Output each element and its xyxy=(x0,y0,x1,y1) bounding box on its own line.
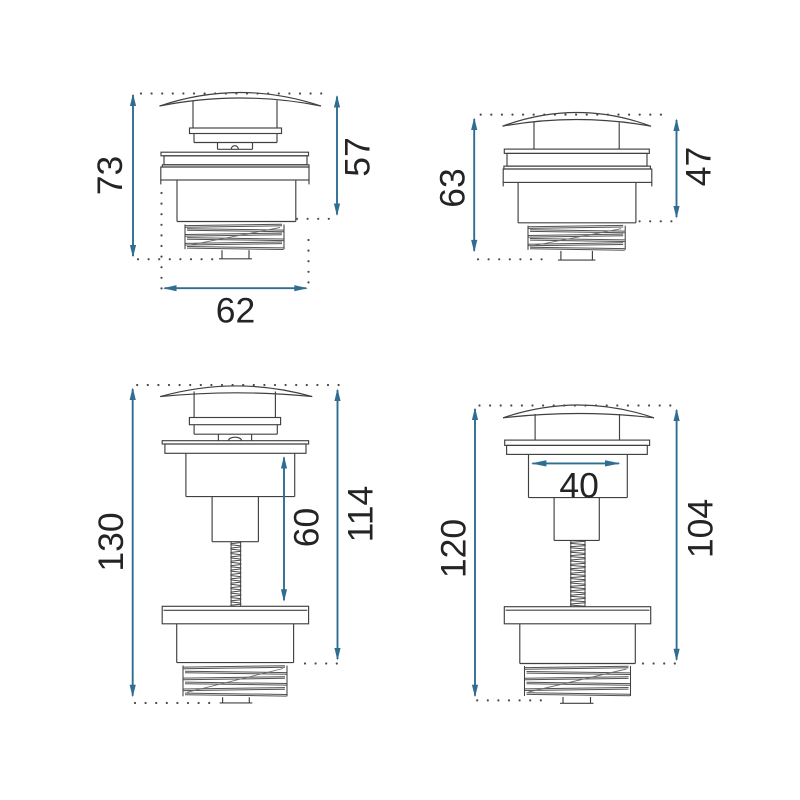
svg-text:63: 63 xyxy=(433,168,473,208)
svg-text:60: 60 xyxy=(287,508,327,548)
svg-text:104: 104 xyxy=(681,499,721,558)
svg-text:57: 57 xyxy=(338,137,378,177)
svg-text:114: 114 xyxy=(341,486,381,543)
svg-text:73: 73 xyxy=(90,156,130,196)
svg-text:120: 120 xyxy=(434,519,474,578)
svg-text:130: 130 xyxy=(91,512,131,571)
svg-text:40: 40 xyxy=(559,465,599,505)
svg-text:47: 47 xyxy=(679,147,719,187)
svg-text:62: 62 xyxy=(216,291,256,331)
